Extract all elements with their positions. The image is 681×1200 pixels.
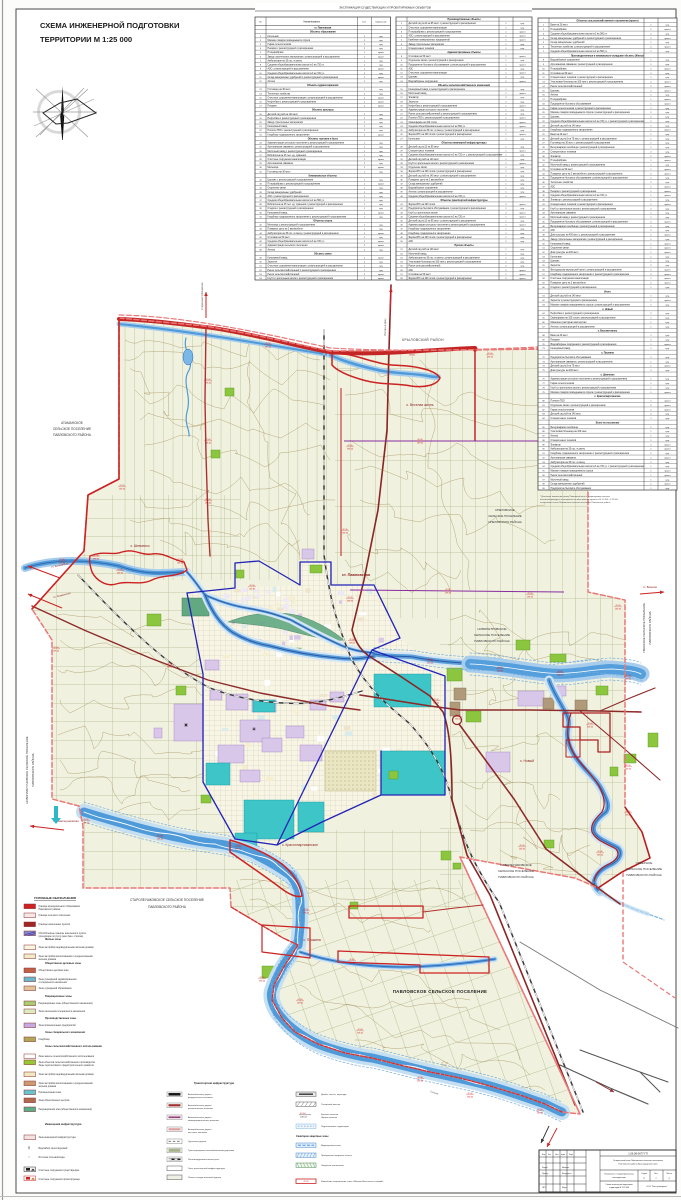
svg-text:ПАВЛОВСКОГО РАЙОНА: ПАВЛОВСКОГО РАЙОНА <box>498 875 534 879</box>
svg-text:проект: проект <box>519 81 525 83</box>
svg-text:проект: проект <box>664 475 670 477</box>
svg-text:АЗС: АЗС <box>409 269 414 272</box>
svg-text:138.04: 138.04 <box>587 726 594 728</box>
svg-text:Птицефабрика: Птицефабрика <box>268 51 285 54</box>
svg-text:Свиноферма на 100 голов: Свиноферма на 100 голов <box>409 121 438 124</box>
svg-text:проект: проект <box>378 245 384 247</box>
svg-text:Магазин товаров повседневного: Магазин товаров повседневного спроса <box>551 471 594 473</box>
svg-text:Зона транспортной инфраструкту: Зона транспортной инфраструктуры <box>188 1167 225 1170</box>
svg-text:сущ.: сущ. <box>665 339 670 341</box>
svg-text:Баня на 20 мест: Баня на 20 мест <box>551 134 569 136</box>
svg-text:сущ.: сущ. <box>665 60 670 62</box>
svg-text:Кладбище традиционного захорон: Кладбище традиционного захоронения с рек… <box>551 273 630 276</box>
svg-text:сущ.: сущ. <box>520 155 525 157</box>
svg-text:Магазин товаров повседневного: Магазин товаров повседневного спроса с р… <box>551 303 631 306</box>
svg-text:проект: проект <box>664 29 670 31</box>
svg-text:Изм: Изм <box>542 1154 545 1156</box>
svg-text:Павловского района: Павловского района <box>39 908 61 911</box>
svg-text:Стадия: Стадия <box>641 1173 647 1175</box>
svg-text:138.04: 138.04 <box>455 718 462 720</box>
svg-text:Кол.: Кол. <box>548 1154 552 1156</box>
svg-text:138.04: 138.04 <box>527 596 534 598</box>
svg-text:Производственные и коммунально: Производственные и коммунально-складские… <box>571 54 645 57</box>
svg-text:проект: проект <box>519 31 525 33</box>
svg-text:Гостиница на 30 мест: Гостиница на 30 мест <box>268 89 292 91</box>
svg-text:х. Пушкина: х. Пушкина <box>303 938 321 942</box>
svg-text:138.04: 138.04 <box>265 346 272 348</box>
svg-text:Инженерная инфраструктура: Инженерная инфраструктура <box>45 1123 82 1126</box>
svg-text:Всего по поселению: Всего по поселению <box>596 422 619 424</box>
svg-text:сущ.: сущ. <box>665 466 670 468</box>
svg-text:Амбулатория на 35 пос. в смену: Амбулатория на 35 пос. в смену с реконст… <box>409 256 480 259</box>
svg-text:проект: проект <box>664 243 670 245</box>
svg-text:проект: проект <box>664 130 670 132</box>
svg-text:Артезианская скважина с реконс: Артезианская скважина с реконструкцией и… <box>551 360 613 363</box>
svg-text:проект: проект <box>378 257 384 259</box>
svg-text:проект: проект <box>378 97 384 99</box>
svg-text:сущ.: сущ. <box>520 89 525 91</box>
svg-text:сущ.: сущ. <box>665 261 670 263</box>
svg-text:ПАВЛОВСКОГО РАЙОНА: ПАВЛОВСКОГО РАЙОНА <box>626 873 662 877</box>
svg-text:Производственные объекты: Производственные объекты <box>448 18 481 21</box>
svg-text:Клуб со зрительным залом с рек: Клуб со зрительным залом с реконструкцие… <box>551 386 617 389</box>
svg-text:Баня на 20 мест: Баня на 20 мест <box>551 25 569 27</box>
svg-text:сущ.: сущ. <box>665 335 670 337</box>
svg-text:Свиноферма на 100 голов с реко: Свиноферма на 100 голов с реконструкцией… <box>551 317 616 320</box>
svg-text:проект: проект <box>519 73 525 75</box>
svg-text:сущ.: сущ. <box>520 241 525 243</box>
svg-text:проект: проект <box>664 191 670 193</box>
svg-text:сущ.: сущ. <box>379 126 384 128</box>
svg-text:сущ.: сущ. <box>379 130 384 132</box>
svg-text:Артезианская скважина с реконс: Артезианская скважина с реконструкцией и… <box>268 146 330 149</box>
svg-text:проект: проект <box>664 248 670 250</box>
svg-text:Нефтебаза с реконструкцией и р: Нефтебаза с реконструкцией и расширением <box>268 117 317 120</box>
svg-text:138.04: 138.04 <box>497 670 504 672</box>
svg-text:Котельная: Котельная <box>409 138 421 140</box>
svg-text:Средняя общеобразовательная шк: Средняя общеобразовательная школа №3 на … <box>551 465 645 468</box>
svg-text:х. Новый: х. Новый <box>520 759 534 763</box>
svg-text:Консервный завод: Консервный завод <box>551 242 571 245</box>
svg-text:Элеватор с реконструкцией и ра: Элеватор с реконструкцией и расширением <box>551 199 598 202</box>
svg-text:проект: проект <box>378 167 384 169</box>
svg-text:Зона инженерной инфраструктуры: Зона инженерной инфраструктуры <box>39 1136 77 1139</box>
svg-text:проект: проект <box>378 77 384 79</box>
svg-text:сущ.: сущ. <box>665 125 670 127</box>
svg-text:поселений приведено в материал: поселений приведено в материалах по обос… <box>540 498 619 501</box>
svg-text:проект: проект <box>664 405 670 407</box>
svg-text:регионального значения: регионального значения <box>188 1108 214 1110</box>
svg-text:Тепличное хозяйство: Тепличное хозяйство <box>268 92 291 95</box>
svg-text:Зона земель сельскохозяйственн: Зона земель сельскохозяйственного исполь… <box>39 1055 95 1058</box>
svg-text:проект: проект <box>664 278 670 280</box>
svg-text:Детский сад №12 на 95 мест: Детский сад №12 на 95 мест <box>409 146 441 149</box>
svg-text:сущ.: сущ. <box>520 101 525 103</box>
svg-text:проект: проект <box>378 184 384 186</box>
svg-text:Молочный завод: Молочный завод <box>409 92 428 95</box>
svg-text:ПАВЛОВСКОГО РАЙОНА: ПАВЛОВСКОГО РАЙОНА <box>474 639 510 643</box>
svg-text:сущ.: сущ. <box>379 196 384 198</box>
svg-text:СЕЛЬСКОЕ ПОСЕЛЕНИЕ: СЕЛЬСКОЕ ПОСЕЛЕНИЕ <box>474 633 510 637</box>
svg-text:Администрация сельского поселе: Администрация сельского поселения с реко… <box>409 224 486 227</box>
svg-text:сущ.: сущ. <box>665 361 670 363</box>
svg-text:сущ.: сущ. <box>665 25 670 27</box>
svg-text:сущ.: сущ. <box>379 81 384 83</box>
svg-text:Пекарня с реконструкцией и рас: Пекарня с реконструкцией и расширением <box>268 47 314 50</box>
svg-text:сущ.: сущ. <box>520 48 525 50</box>
svg-text:проект: проект <box>664 344 670 346</box>
svg-text:Столовая на 50 мест: Столовая на 50 мест <box>268 237 291 239</box>
svg-text:Средняя общеобразовательная шк: Средняя общеобразовательная школа №2 на … <box>551 50 608 53</box>
svg-text:сущ.: сущ. <box>665 256 670 258</box>
svg-text:Старонижестеблиевская: Старонижестеблиевская <box>201 282 204 310</box>
svg-text:сущ.: сущ. <box>665 287 670 289</box>
svg-text:проект: проект <box>664 444 670 446</box>
svg-text:42.00: 42.00 <box>303 1181 309 1183</box>
svg-text:Дамбы, мосты, переезды: Дамбы, мосты, переезды <box>321 1094 347 1096</box>
svg-text:проект: проект <box>378 134 384 136</box>
svg-text:сущ.: сущ. <box>379 48 384 50</box>
svg-text:Консервный завод: Консервный завод <box>268 211 288 214</box>
svg-text:Станция юных техников: Станция юных техников <box>409 151 435 153</box>
svg-text:проект: проект <box>664 195 670 197</box>
svg-text:Красная отметка: Красная отметка <box>321 1114 339 1116</box>
svg-text:Детский сад №3 на 75 мест с ре: Детский сад №3 на 75 мест с реконструкци… <box>551 137 617 140</box>
svg-text:жилыми домами: жилыми домами <box>39 1086 57 1088</box>
svg-text:Коммунальные объекты: Коммунальные объекты <box>309 174 337 177</box>
svg-text:проект: проект <box>378 56 384 58</box>
svg-text:Административные объекты: Административные объекты <box>447 51 480 54</box>
svg-text:○: ○ <box>28 1155 30 1159</box>
svg-text:Молочный завод: Молочный завод <box>409 252 428 255</box>
svg-text:Зоны перспективного градострои: Зоны перспективного градостроительного р… <box>39 1065 95 1067</box>
svg-text:сущ.: сущ. <box>379 188 384 190</box>
svg-text:Водоохранная зона: Водоохранная зона <box>321 1145 342 1147</box>
svg-text:сущ.: сущ. <box>665 77 670 79</box>
svg-text:Предприятие бытового обслужива: Предприятие бытового обслуживания <box>551 488 592 490</box>
svg-text:Полигон ТБО: Полигон ТБО <box>551 401 565 403</box>
svg-text:Мельница с реконструкцией и ра: Мельница с реконструкцией и расширением <box>268 224 316 227</box>
svg-text:сущ.: сущ. <box>520 262 525 264</box>
svg-text:проект: проект <box>519 216 525 218</box>
svg-text:сущ.: сущ. <box>379 143 384 145</box>
svg-text:Железнодорожная магистраль: Железнодорожная магистраль <box>188 1159 220 1161</box>
svg-text:территории М 1:25 000: территории М 1:25 000 <box>609 1187 629 1189</box>
svg-text:138.04: 138.04 <box>417 1080 424 1082</box>
svg-text:сущ.: сущ. <box>379 44 384 46</box>
svg-text:Баня на 20 мест: Баня на 20 мест <box>551 335 569 337</box>
svg-text:проект: проект <box>378 278 384 280</box>
svg-text:проект: проект <box>664 68 670 70</box>
svg-text:сущ.: сущ. <box>379 40 384 42</box>
svg-text:сущ.: сущ. <box>520 27 525 29</box>
svg-text:УСЛОВНЫЕ ОБОЗНАЧЕНИЯ: УСЛОВНЫЕ ОБОЗНАЧЕНИЯ <box>34 896 76 900</box>
svg-text:138.04: 138.04 <box>433 702 440 704</box>
svg-text:сущ.: сущ. <box>665 265 670 267</box>
svg-text:проект: проект <box>378 101 384 103</box>
svg-text:Участковая больница на 100 кое: Участковая больница на 100 коек <box>551 431 588 433</box>
svg-text:с. Краснопартизанское: с. Краснопартизанское <box>282 843 318 847</box>
svg-text:сущ.: сущ. <box>665 370 670 372</box>
svg-text:сущ.: сущ. <box>665 322 670 324</box>
svg-text:138.04: 138.04 <box>417 442 424 444</box>
svg-text:Очистные сооружения существующ: Очистные сооружения существующие <box>39 1170 81 1172</box>
svg-text:Склад минеральных удобрений с: Склад минеральных удобрений с реконструк… <box>268 76 339 79</box>
svg-text:сущ.: сущ. <box>520 138 525 140</box>
svg-text:Рекреационные зоны (общественн: Рекреационные зоны (общественного назнач… <box>39 1003 93 1005</box>
svg-text:сущ.: сущ. <box>665 182 670 184</box>
svg-text:Завод строительных материалов: Завод строительных материалов с реконстр… <box>268 55 340 58</box>
svg-text:Станция юных техников с реконс: Станция юных техников с реконструкцией и… <box>551 203 614 206</box>
svg-text:Консервный завод с реконструкц: Консервный завод с реконструкцией и расш… <box>409 88 466 91</box>
svg-text:сущ.: сущ. <box>379 147 384 149</box>
svg-text:Завод строительных материалов: Завод строительных материалов с реконстр… <box>551 238 623 241</box>
svg-text:сущ.: сущ. <box>665 112 670 114</box>
svg-text:сущ.: сущ. <box>665 138 670 140</box>
svg-text:Автомобильная дорога: Автомобильная дорога <box>188 1116 212 1119</box>
svg-text:Подтопляемые территории: Подтопляемые территории <box>321 1126 349 1128</box>
svg-text:Ферма КРС на 400 голов с рекон: Ферма КРС на 400 голов с реконструкцией … <box>409 133 473 136</box>
svg-text:КРЫЛОВСКИЙ РАЙОН: КРЫЛОВСКИЙ РАЙОН <box>402 338 444 342</box>
svg-text:сущ.: сущ. <box>665 165 670 167</box>
svg-text:Водозаборные сооружения с реко: Водозаборные сооружения с реконструкцией… <box>551 343 617 346</box>
svg-text:сущ.: сущ. <box>665 64 670 66</box>
svg-text:Объекты спорта: Объекты спорта <box>313 220 333 223</box>
svg-text:проект: проект <box>664 274 670 276</box>
svg-text:проект: проект <box>664 457 670 459</box>
svg-text:местного значения: местного значения <box>188 1132 208 1134</box>
svg-text:Зона объектов сельскохозяйстве: Зона объектов сельскохозяйственного прои… <box>39 1061 96 1064</box>
svg-text:ст. Веселая: ст. Веселая <box>643 585 657 589</box>
svg-text:Клуб со зрительным залом с рек: Клуб со зрительным залом с реконструкцие… <box>551 207 617 210</box>
svg-text:проект: проект <box>519 93 525 95</box>
svg-text:Завод строительных материалов: Завод строительных материалов <box>409 44 445 46</box>
svg-text:Ферма КРС на 400 голов с рекон: Ферма КРС на 400 голов с реконструкцией … <box>409 277 473 280</box>
svg-text:Средняя общеобразовательная шк: Средняя общеобразовательная школа №3 на … <box>551 194 608 197</box>
svg-text:Предприятие бытового обслужива: Предприятие бытового обслуживания с реко… <box>409 63 487 66</box>
svg-text:Черная отметка: Черная отметка <box>321 1117 338 1119</box>
svg-text:проект: проект <box>519 212 525 214</box>
svg-text:Объекты торговли и быта: Объекты торговли и быта <box>308 137 339 140</box>
svg-text:Кладбище традиционного захорон: Кладбище традиционного захоронения с рек… <box>551 452 630 455</box>
svg-text:Рынок сельскохозяйственный: Рынок сельскохозяйственный <box>268 273 301 276</box>
svg-text:проект: проект <box>664 204 670 206</box>
svg-text:Павловского района Краснодарск: Павловского района Краснодарского края <box>619 1163 658 1166</box>
svg-text:х. Шевченко: х. Шевченко <box>601 374 616 376</box>
svg-text:сущ.: сущ. <box>520 192 525 194</box>
svg-text:проект: проект <box>378 106 384 108</box>
svg-text:Автомобильная дорога: Автомобильная дорога <box>188 1093 212 1096</box>
svg-text:Средняя общеобразовательная шк: Средняя общеобразовательная школа №2 на … <box>551 32 608 35</box>
svg-text:138.04: 138.04 <box>625 678 632 680</box>
svg-text:138.04: 138.04 <box>205 502 212 504</box>
svg-text:Комбинат коммунальных предприя: Комбинат коммунальных предприятий <box>409 39 451 42</box>
svg-text:Очистные сооружения канализаци: Очистные сооружения канализации с реконс… <box>268 96 344 99</box>
svg-text:АЗС: АЗС <box>551 229 556 232</box>
svg-text:Средняя общеобразовательная шк: Средняя общеобразовательная школа №3 на … <box>268 240 325 243</box>
svg-text:Элеватор: Элеватор <box>551 444 562 446</box>
svg-text:Молочный завод: Молочный завод <box>551 478 570 481</box>
svg-text:сущ.: сущ. <box>665 431 670 433</box>
svg-text:сущ.: сущ. <box>379 89 384 91</box>
svg-text:сущ.: сущ. <box>665 208 670 210</box>
svg-text:Производственные зоны: Производственные зоны <box>45 1017 76 1020</box>
svg-text:Водозаборные сооружения: Водозаборные сооружения <box>551 60 581 62</box>
svg-text:ст. Павловская: ст. Павловская <box>342 573 370 577</box>
svg-text:Кладбище традиционного захорон: Кладбище традиционного захоронения с рек… <box>268 215 347 218</box>
svg-text:Консервный завод: Консервный завод <box>268 125 288 128</box>
svg-text:Станция юных техников: Станция юных техников <box>551 440 577 442</box>
svg-text:Зона озеленения специального н: Зона озеленения специального назначения <box>39 1011 86 1013</box>
svg-text:сущ.: сущ. <box>520 68 525 70</box>
svg-text:Мороз: Мороз <box>562 1187 567 1189</box>
svg-text:проект: проект <box>664 392 670 394</box>
svg-text:сущ.: сущ. <box>379 229 384 231</box>
svg-text:Птицефабрика с реконструкцией: Птицефабрика с реконструкцией и расширен… <box>409 30 462 33</box>
svg-text:Станция юных техников: Станция юных техников <box>551 418 577 420</box>
svg-text:генерального плана Павловского: генерального плана Павловского сельского… <box>540 501 611 504</box>
svg-text:сущ.: сущ. <box>665 462 670 464</box>
svg-text:Котельная: Котельная <box>268 36 280 38</box>
svg-text:Аптека: Аптека <box>551 94 559 97</box>
svg-text:Аптека: Аптека <box>268 248 276 251</box>
svg-text:сущ.: сущ. <box>379 237 384 239</box>
svg-text:проект: проект <box>664 86 670 88</box>
svg-text:Ветеринарная лечебница: Ветеринарная лечебница <box>551 427 579 429</box>
svg-text:сущ.: сущ. <box>520 97 525 99</box>
svg-text:Зона учреждений образования: Зона учреждений образования <box>39 987 73 990</box>
svg-text:Средняя общеобразовательная шк: Средняя общеобразовательная школа №2 на … <box>268 199 325 202</box>
svg-text:Наименование: Наименование <box>303 21 320 24</box>
svg-text:сущ.: сущ. <box>520 130 525 132</box>
svg-text:к. Веселая жизнь: к. Веселая жизнь <box>407 403 434 407</box>
svg-text:сущ.: сущ. <box>520 110 525 112</box>
svg-text:Водозаборные сооружения: Водозаборные сооружения <box>409 188 439 190</box>
svg-text:Элеватор: Элеватор <box>551 156 562 158</box>
svg-text:Прочие объекты: Прочие объекты <box>454 244 473 247</box>
svg-text:АЗС: АЗС <box>409 240 414 243</box>
svg-text:138.04: 138.04 <box>177 562 184 564</box>
svg-text:Столовая на 50 мест: Столовая на 50 мест <box>409 274 432 276</box>
svg-text:Средняя общеобразовательная шк: Средняя общеобразовательная школа №3 на … <box>268 64 325 67</box>
svg-text:Амбулатория на 35 пос. в смену: Амбулатория на 35 пос. в смену с реконст… <box>409 129 480 132</box>
svg-text:проект: проект <box>664 252 670 254</box>
svg-text:Станция юных техников с реконс: Станция юных техников с реконструкцией и… <box>551 76 614 79</box>
svg-text:проект: проект <box>664 221 670 223</box>
svg-text:Защитное озеленение: Защитное озеленение <box>321 1165 344 1167</box>
svg-text:проект: проект <box>664 366 670 368</box>
svg-text:сущ.: сущ. <box>379 204 384 206</box>
svg-text:сущ.: сущ. <box>379 151 384 153</box>
svg-text:сущ.: сущ. <box>379 192 384 194</box>
svg-text:Объекты транспортной инфрастру: Объекты транспортной инфраструктуры <box>440 199 487 202</box>
svg-text:Ветеринарная лечебница с рекон: Ветеринарная лечебница с реконструкцией … <box>551 146 615 149</box>
svg-text:Склад минеральных удобрений с: Склад минеральных удобрений с реконструк… <box>551 37 622 40</box>
svg-text:Шипелик: Шипелик <box>562 1167 569 1169</box>
svg-text:Церковь: Церковь <box>551 117 561 119</box>
svg-text:138.04: 138.04 <box>537 1112 544 1114</box>
svg-text:Детский сад №8 на 140 мест: Детский сад №8 на 140 мест <box>551 413 583 416</box>
svg-text:Элеватор: Элеватор <box>409 97 420 99</box>
svg-text:Предприятие бытового обслужива: Предприятие бытового обслуживания <box>551 357 592 359</box>
svg-text:Зерноток с реконструкцией и ра: Зерноток с реконструкцией и расширением <box>551 299 598 302</box>
svg-text:проект: проект <box>664 156 670 158</box>
svg-text:Птицефабрика: Птицефабрика <box>551 67 568 70</box>
svg-text:Отделение связи с реконструкци: Отделение связи с реконструкцией и расши… <box>409 59 464 62</box>
svg-text:ЭКСПЛИКАЦИЯ СУЩЕСТВУЮЩИХ И ПРО: ЭКСПЛИКАЦИЯ СУЩЕСТВУЮЩИХ И ПРОЕКТИРУЕМЫХ… <box>339 6 431 10</box>
svg-text:ТЕРРИТОРИИ М 1:25 000: ТЕРРИТОРИИ М 1:25 000 <box>40 35 132 44</box>
svg-text:сущ.: сущ. <box>665 239 670 241</box>
svg-text:проект: проект <box>664 471 670 473</box>
svg-text:138.04: 138.04 <box>249 588 256 590</box>
svg-text:Клуб со зрительным залом: Клуб со зрительным залом <box>409 212 438 214</box>
svg-text:проект: проект <box>664 269 670 271</box>
svg-text:сущ.: сущ. <box>520 77 525 79</box>
svg-text:Отделение связи: Отделение связи <box>409 167 428 169</box>
svg-text:проект: проект <box>519 196 525 198</box>
svg-text:Пекарня: Пекарня <box>268 106 278 108</box>
svg-text:Гараж сельхозтехники с реконст: Гараж сельхозтехники с реконструкцией и … <box>551 107 612 110</box>
svg-text:Рынок сельскохозяйственный: Рынок сельскохозяйственный <box>551 474 584 477</box>
svg-text:Администрация сельского поселе: Администрация сельского поселения с реко… <box>268 142 345 145</box>
svg-text:НОВОПЕТРОВСКОЕ: НОВОПЕТРОВСКОЕ <box>477 627 506 631</box>
svg-text:сущ.: сущ. <box>520 220 525 222</box>
svg-text:сущ.: сущ. <box>379 93 384 95</box>
svg-text:138.04: 138.04 <box>300 1117 307 1119</box>
svg-text:проект: проект <box>664 169 670 171</box>
svg-text:Средняя общеобразовательная шк: Средняя общеобразовательная школа №3 на … <box>551 120 645 123</box>
svg-text:с. Краснопартизанское: с. Краснопартизанское <box>594 396 621 398</box>
svg-text:сущ.: сущ. <box>379 270 384 272</box>
svg-text:Средняя общеобразовательная шк: Средняя общеобразовательная школа №3 на … <box>409 215 466 218</box>
svg-text:сущ.: сущ. <box>665 453 670 455</box>
svg-text:сущ.: сущ. <box>665 121 670 123</box>
svg-text:Рынок сельскохозяйственный с р: Рынок сельскохозяйственный с реконструкц… <box>268 269 337 272</box>
svg-text:Лист: Лист <box>555 1154 559 1156</box>
svg-text:Птицефабрика с реконструкцией: Птицефабрика с реконструкцией и расширен… <box>268 183 321 186</box>
svg-text:Детский сад №8 на 140 мест: Детский сад №8 на 140 мест <box>409 158 441 161</box>
svg-text:Источник питьевой воды: Источник питьевой воды <box>39 1156 66 1159</box>
svg-text:сущ.: сущ. <box>665 427 670 429</box>
svg-text:Консервный завод: Консервный завод <box>268 256 288 259</box>
svg-text:х. Новый: х. Новый <box>602 308 613 311</box>
svg-text:Объекты сельскохозяйственного: Объекты сельскохозяйственного назначения… <box>577 19 639 22</box>
svg-text:проект: проект <box>664 99 670 101</box>
svg-text:ПАВЛОВСКОГО РАЙОНА: ПАВЛОВСКОГО РАЙОНА <box>148 905 187 909</box>
svg-text:проект: проект <box>664 160 670 162</box>
svg-text:сущ.: сущ. <box>665 383 670 385</box>
svg-text:сущ.: сущ. <box>665 134 670 136</box>
svg-text:Очистные сооружения канализаци: Очистные сооружения канализации <box>551 278 590 280</box>
svg-text:Молочный завод с реконструкцие: Молочный завод с реконструкцией и расшир… <box>551 216 606 219</box>
svg-text:1.06.08-0677-ГП: 1.06.08-0677-ГП <box>628 1152 648 1156</box>
svg-text:138.04: 138.04 <box>59 562 66 564</box>
svg-text:сущ.: сущ. <box>665 296 670 298</box>
svg-text:сущ.: сущ. <box>520 257 525 259</box>
svg-text:проект: проект <box>664 283 670 285</box>
svg-text:Молочный завод с реконструкцие: Молочный завод с реконструкцией и расшир… <box>551 164 606 167</box>
svg-text:Очистные сооружения канализаци: Очистные сооружения канализации <box>409 73 448 75</box>
svg-text:Изменение направления стока «М: Изменение направления стока «Метран-Вост… <box>321 1180 384 1183</box>
svg-text:сущ.: сущ. <box>520 44 525 46</box>
svg-text:Администрация сельского поселе: Администрация сельского поселения с реко… <box>551 378 628 381</box>
svg-text:сущ.: сущ. <box>665 200 670 202</box>
svg-text:138.04: 138.04 <box>597 854 604 856</box>
svg-text:Рынок сельскохозяйственный: Рынок сельскохозяйственный <box>409 265 442 268</box>
svg-text:Предприятие бытового обслужива: Предприятие бытового обслуживания <box>551 103 592 105</box>
svg-text:Средняя общеобразовательная шк: Средняя общеобразовательная школа №3 на … <box>409 195 466 198</box>
svg-text:Средняя общеобразовательная шк: Средняя общеобразовательная школа №2 на … <box>409 125 466 128</box>
